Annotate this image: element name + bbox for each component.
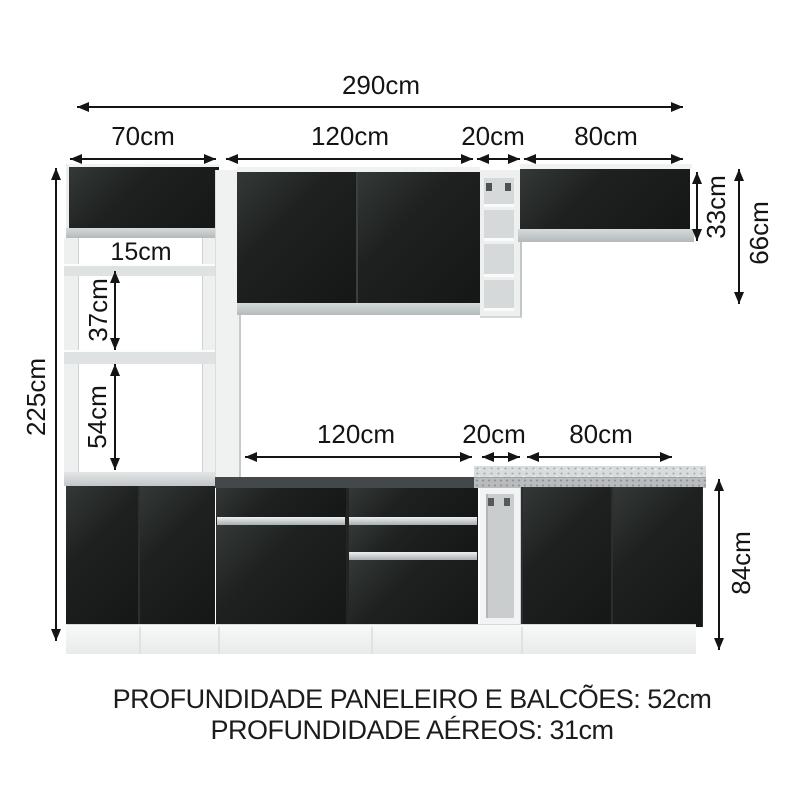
dim-line-top-70 xyxy=(70,158,216,160)
pantry-base-door-left xyxy=(66,486,138,624)
plinth-seam-3 xyxy=(371,627,373,654)
base-120-drawer-2 xyxy=(349,525,478,552)
upper-shelf-niche-1 xyxy=(484,178,514,207)
upper-shelf-niche-4 xyxy=(484,280,514,311)
plinth-seam-4 xyxy=(521,627,523,654)
dim-line-84 xyxy=(718,479,720,650)
base-120-top-drawer-left xyxy=(216,488,346,517)
pantry-counter-band xyxy=(64,472,218,486)
depth-note-line1: PROFUNDIDADE PANELEIRO E BALCÕES: 52cm xyxy=(12,684,800,715)
base-80-door-left xyxy=(523,487,611,627)
upper-open-shelf-20 xyxy=(480,170,522,318)
dim-line-mid-20 xyxy=(482,456,520,458)
dim-line-top-80 xyxy=(524,158,683,160)
pantry-base-door-right xyxy=(140,486,215,624)
plinth xyxy=(66,624,696,654)
wall-cabinet-120-door-left xyxy=(237,172,356,303)
dim-label-mid-20: 20cm xyxy=(462,421,526,447)
wall-cabinet-120-door-right xyxy=(358,172,480,303)
dim-label-mid-120: 120cm xyxy=(317,421,395,447)
dim-line-mid-80 xyxy=(527,456,672,458)
kitchen-dimension-diagram: 290cm 70cm 120cm 20cm 80cm 120cm 20cm 80… xyxy=(0,0,800,800)
depth-notes: PROFUNDIDADE PANELEIRO E BALCÕES: 52cm P… xyxy=(12,684,800,746)
pantry-top-cabinet-door xyxy=(66,164,219,231)
dim-line-290 xyxy=(77,106,683,108)
wall-cabinet-120 xyxy=(237,172,480,303)
dim-label-33: 33cm xyxy=(703,175,729,239)
dim-line-54 xyxy=(114,364,116,470)
base-niche-hinge-2 xyxy=(504,498,510,506)
dim-line-top-120 xyxy=(226,158,473,160)
dim-label-top-70: 70cm xyxy=(111,123,175,149)
base-cabinet-120-front xyxy=(216,488,478,624)
upper-shelf-niche-2 xyxy=(484,210,514,241)
base-120-top-drawer-right xyxy=(349,488,478,517)
dim-label-top-20: 20cm xyxy=(461,123,525,149)
pantry-base-doors xyxy=(66,486,215,624)
dim-line-mid-120 xyxy=(245,456,472,458)
wall-cabinet-80-bottom-band xyxy=(518,229,694,242)
base-niche-interior xyxy=(486,494,514,618)
plinth-seam-2 xyxy=(218,627,220,654)
dim-label-54: 54cm xyxy=(84,385,110,449)
dim-line-225 xyxy=(55,168,57,641)
wall-cabinet-120-bottom-band xyxy=(237,303,480,315)
dim-label-84: 84cm xyxy=(728,531,754,595)
plinth-seam-1 xyxy=(139,627,141,654)
upper-shelf-niche-3 xyxy=(484,244,514,277)
base-120-drawer-3 xyxy=(349,560,478,624)
base-80-door-right xyxy=(613,487,702,627)
dim-label-290: 290cm xyxy=(342,72,420,98)
dim-line-37 xyxy=(114,271,116,350)
pantry-shelf-2 xyxy=(64,350,216,364)
dim-label-mid-80: 80cm xyxy=(569,421,633,447)
dim-line-top-20 xyxy=(477,158,520,160)
dim-label-top-80: 80cm xyxy=(574,123,638,149)
dim-label-15: 15cm xyxy=(110,239,171,265)
shelf-hinge-left xyxy=(486,183,492,191)
dim-label-66: 66cm xyxy=(746,201,772,265)
dim-label-225: 225cm xyxy=(23,358,49,436)
dim-line-33 xyxy=(696,172,698,241)
dim-line-66 xyxy=(738,169,740,304)
base-cabinet-80 xyxy=(521,487,703,627)
dim-label-top-120: 120cm xyxy=(311,123,389,149)
dim-label-37: 37cm xyxy=(85,278,111,342)
countertop-top-face xyxy=(474,466,706,477)
base-120-dark-counter xyxy=(215,477,478,488)
base-120-door-left xyxy=(216,525,346,624)
shelf-hinge-right xyxy=(505,183,511,191)
base-niche-hinge-1 xyxy=(488,498,494,506)
base-open-niche-20 xyxy=(480,486,522,624)
depth-note-line2: PROFUNDIDADE AÉREOS: 31cm xyxy=(12,715,800,746)
pantry-top-trim-band xyxy=(66,228,216,238)
wall-cabinet-80-door xyxy=(520,169,690,229)
